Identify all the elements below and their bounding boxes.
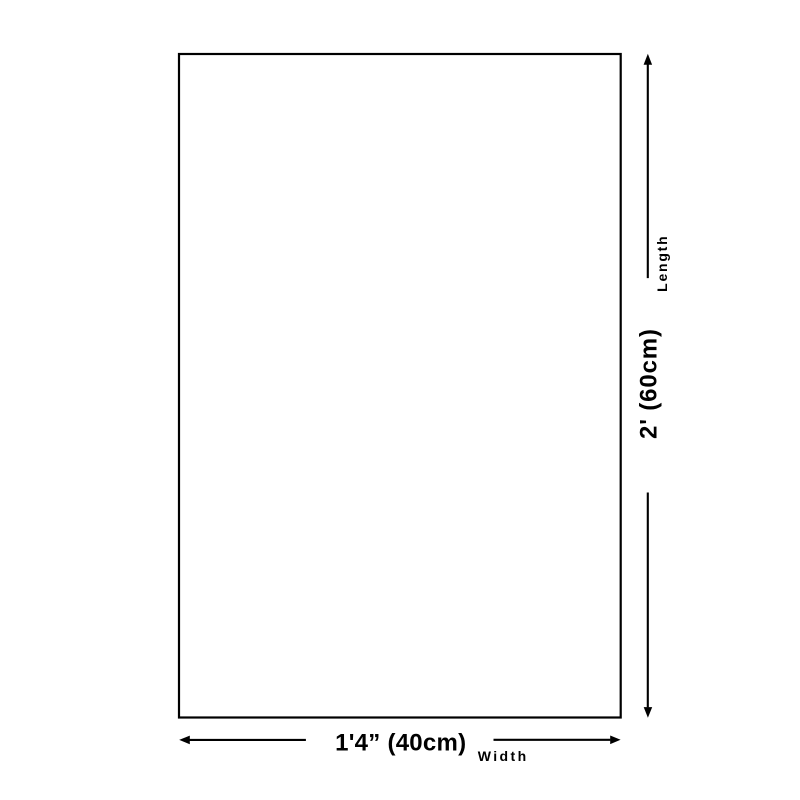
svg-text:Length: Length [654,236,670,292]
svg-text:1'4” (40cm): 1'4” (40cm) [335,730,466,757]
svg-text:Width: Width [478,748,527,764]
svg-text:2' (60cm): 2' (60cm) [636,329,663,439]
